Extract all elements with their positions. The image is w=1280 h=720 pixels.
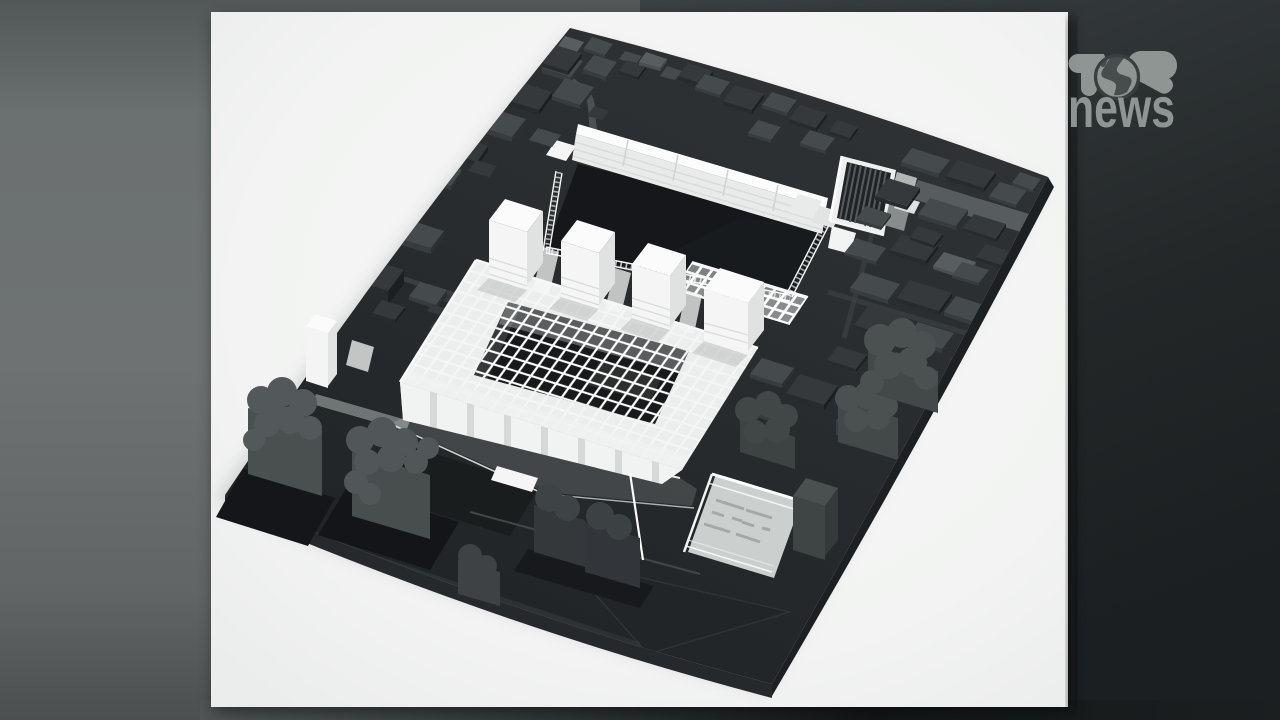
svg-text:news: news <box>1068 76 1175 139</box>
